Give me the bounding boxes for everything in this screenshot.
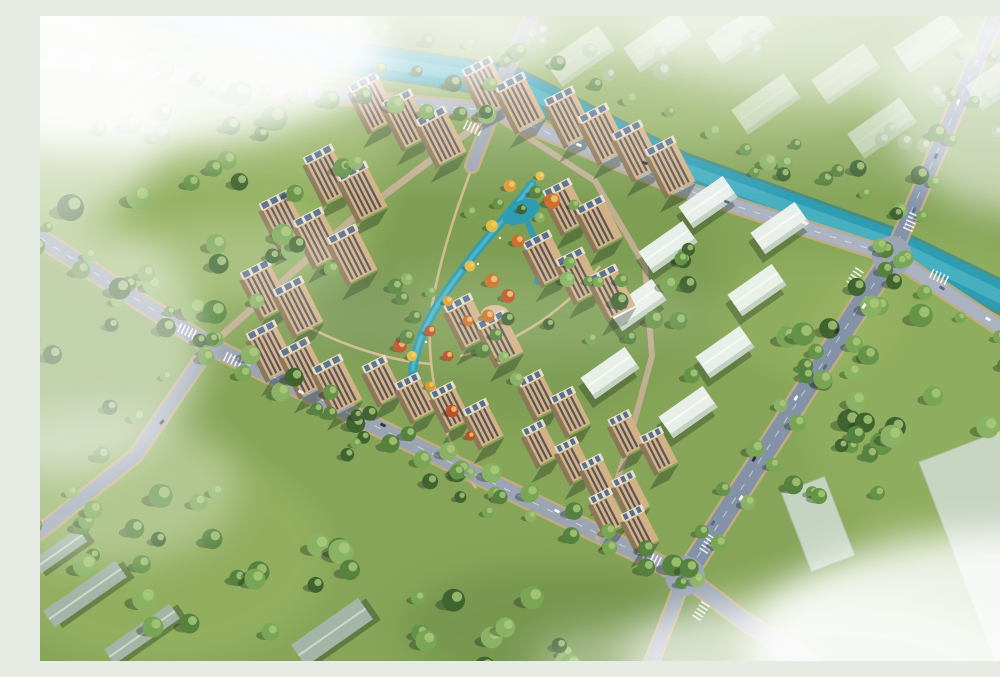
tree-crown-highlight	[608, 526, 615, 533]
tree-crown-highlight	[363, 432, 369, 438]
tree-crown-highlight	[792, 478, 801, 487]
tree-crown-highlight	[469, 432, 473, 436]
tree-crown-highlight	[528, 486, 536, 494]
tree-crown-highlight	[487, 508, 492, 513]
tree-crown-highlight	[530, 511, 535, 516]
tree-crown-highlight	[893, 275, 900, 282]
tree-crown-highlight	[919, 307, 930, 318]
tree-crown-highlight	[877, 488, 884, 495]
tree-crown-highlight	[921, 212, 926, 217]
tree-crown-highlight	[815, 346, 822, 353]
tree-crown-highlight	[242, 367, 250, 375]
tree-crown-highlight	[609, 542, 616, 549]
fountain-sparkle	[499, 237, 501, 239]
tree-crown-highlight	[932, 389, 941, 398]
tree-crown-highlight	[569, 258, 575, 264]
tree-crown-highlight	[205, 351, 212, 358]
tree-crown-highlight	[491, 221, 497, 227]
tree-crown-highlight	[253, 571, 262, 580]
tree-crown-highlight	[429, 382, 434, 387]
tree-crown-highlight	[696, 574, 703, 581]
tree-crown-highlight	[504, 620, 513, 629]
tree-crown-highlight	[499, 492, 506, 499]
tree-crown-highlight	[687, 278, 695, 286]
tree-crown-highlight	[573, 201, 578, 206]
tree-crown-highlight	[667, 278, 675, 286]
tree-crown-highlight	[960, 313, 965, 318]
tree-crown-highlight	[314, 579, 321, 586]
tree-crown-highlight	[805, 370, 812, 377]
tree-crown-highlight	[348, 562, 357, 571]
tree-crown-highlight	[866, 348, 875, 357]
tree-crown-highlight	[490, 465, 499, 474]
tree-crown-highlight	[754, 442, 762, 450]
tree-crown-highlight	[869, 448, 876, 455]
tree-crown-highlight	[986, 418, 996, 428]
tree-crown-highlight	[855, 393, 864, 402]
tree-crown-highlight	[855, 280, 863, 288]
tree-crown-highlight	[452, 592, 462, 602]
tree-crown-highlight	[469, 208, 475, 214]
tree-crown-highlight	[598, 278, 603, 283]
tree-crown-highlight	[355, 439, 360, 444]
tree-crown-highlight	[369, 408, 376, 415]
tree-crown-highlight	[317, 536, 328, 547]
tree-crown-highlight	[530, 589, 540, 599]
tree-crown-highlight	[853, 338, 861, 346]
tree-crown-highlight	[879, 240, 886, 247]
fountain-sparkle	[477, 263, 479, 265]
tree-crown-highlight	[539, 214, 544, 219]
tree-crown-highlight	[339, 542, 350, 553]
tree-crown-highlight	[516, 374, 522, 380]
tree-crown-highlight	[459, 493, 464, 498]
tree-crown-highlight	[316, 404, 322, 410]
tree-crown-highlight	[566, 274, 573, 281]
tree-crown-highlight	[804, 360, 811, 367]
tree-crown-highlight	[818, 490, 825, 497]
tree-crown-highlight	[884, 264, 891, 271]
tree-crown-highlight	[687, 244, 693, 250]
tree-crown-highlight	[417, 592, 424, 599]
tree-crown-highlight	[469, 262, 474, 267]
tree-crown-highlight	[424, 633, 434, 643]
tree-crown-highlight	[356, 411, 361, 416]
tree-crown-highlight	[869, 298, 879, 308]
tree-crown-highlight	[330, 386, 337, 393]
tree-crown-highlight	[143, 589, 154, 600]
tree-crown-highlight	[828, 321, 837, 330]
tree-crown-highlight	[747, 497, 754, 504]
tree-crown-highlight	[772, 460, 778, 466]
tree-crown-highlight	[521, 206, 526, 211]
tree-crown-highlight	[421, 453, 429, 461]
tree-crown-highlight	[293, 370, 302, 379]
tree-crown-highlight	[851, 365, 859, 373]
tree-crown-highlight	[780, 400, 786, 406]
tree-crown-highlight	[407, 428, 414, 435]
tree-crown-highlight	[329, 408, 335, 414]
tree-crown-highlight	[796, 417, 804, 425]
tree-crown-highlight	[451, 406, 457, 412]
tree-crown-highlight	[718, 537, 725, 544]
tree-crown-highlight	[671, 557, 681, 567]
tree-crown-highlight	[896, 209, 902, 215]
tree-crown-highlight	[855, 428, 863, 436]
tree-crown-highlight	[688, 561, 697, 570]
tree-crown-highlight	[389, 437, 397, 445]
tree-crown-highlight	[680, 254, 686, 260]
tree-crown-highlight	[701, 526, 707, 532]
tree-crown-highlight	[801, 325, 812, 336]
tree-crown-highlight	[890, 428, 900, 438]
tree-crown-highlight	[573, 504, 581, 512]
tree-crown-highlight	[570, 529, 578, 537]
tree-crown-highlight	[863, 415, 872, 424]
tree-crown-highlight	[620, 275, 626, 281]
tree-crown-highlight	[645, 561, 653, 569]
fog-patch	[120, 216, 360, 296]
tree-crown-highlight	[822, 372, 830, 380]
tree-crown-highlight	[899, 256, 906, 263]
render-canvas	[40, 16, 1000, 661]
tree-crown-highlight	[722, 484, 728, 490]
tree-crown-highlight	[681, 578, 687, 584]
tree-crown-highlight	[429, 475, 436, 482]
tree-crown-highlight	[447, 445, 455, 453]
tree-crown-highlight	[456, 466, 463, 473]
tree-crown-highlight	[269, 625, 277, 633]
tree-crown-highlight	[841, 440, 847, 446]
tree-crown-highlight	[188, 616, 197, 625]
tree-crown-highlight	[249, 348, 258, 357]
tree-crown-highlight	[346, 450, 352, 456]
tree-crown-highlight	[517, 236, 523, 242]
tree-crown-highlight	[588, 277, 593, 282]
tree-crown-highlight	[690, 369, 697, 376]
tree-crown-highlight	[151, 619, 160, 628]
tree-crown-highlight	[645, 542, 652, 549]
tree-crown-highlight	[211, 334, 217, 340]
aerial-masterplan-render	[40, 16, 1000, 661]
tree-crown-highlight	[279, 385, 288, 394]
tree-crown-highlight	[923, 287, 930, 294]
